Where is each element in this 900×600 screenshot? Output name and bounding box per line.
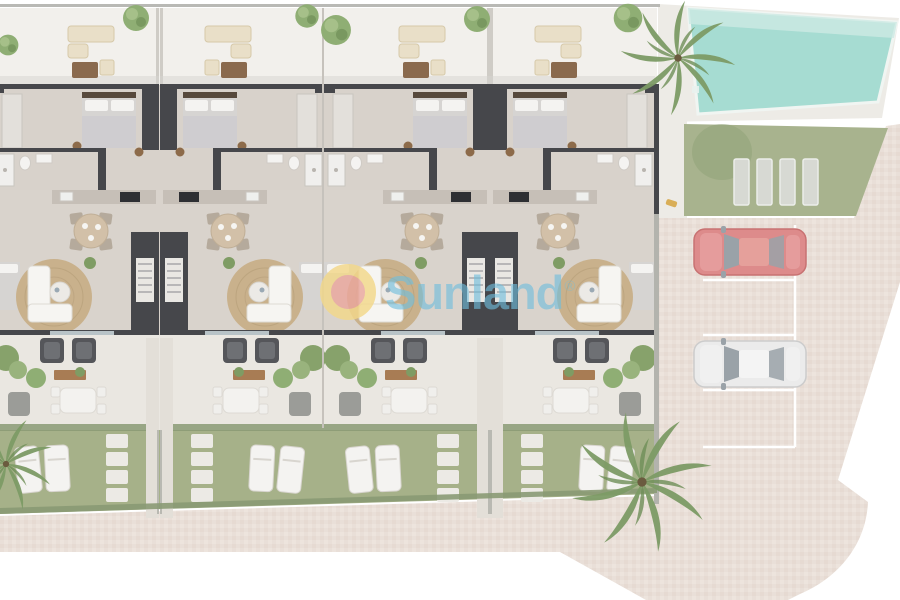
building-end-wall [654,84,659,214]
tree-icon [295,4,318,27]
sun-pad [803,159,818,205]
sun-pad [780,159,795,205]
party-wall [322,8,324,428]
white-car [694,338,806,390]
tree-icon [321,15,351,45]
tree-icon [614,4,643,33]
pool-step [692,86,699,93]
red-car [694,226,806,278]
sun-pad [734,159,749,205]
tree-icon [123,5,149,31]
tree-icon [464,6,490,32]
boundary-wall [0,4,660,7]
site-plan-svg [0,0,900,600]
site-plan: Sunland® [0,0,900,600]
sun-pad [757,159,772,205]
side-fence [654,214,659,504]
